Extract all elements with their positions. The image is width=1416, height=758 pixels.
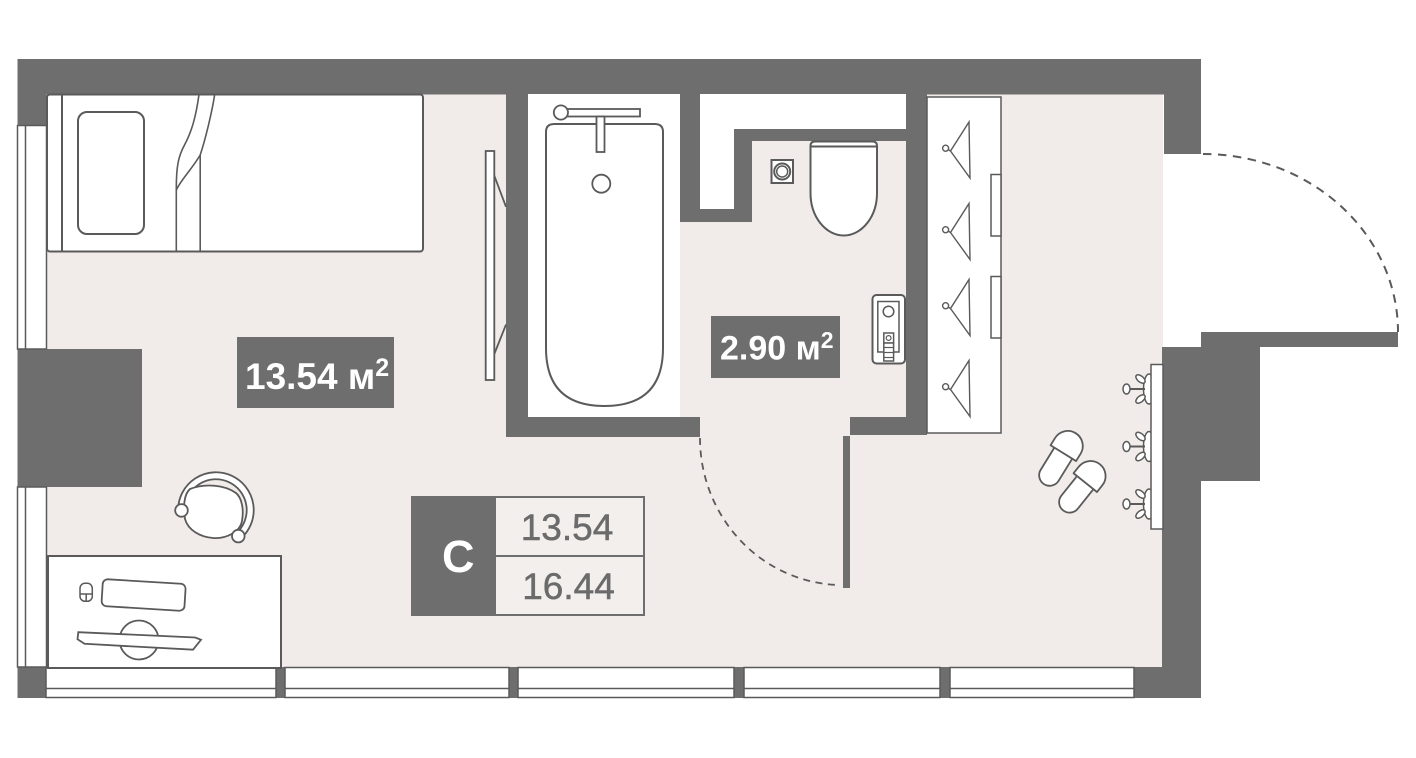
svg-text:13.54 м2: 13.54 м2	[245, 354, 389, 397]
svg-text:C: C	[442, 531, 475, 582]
svg-text:2.90 м2: 2.90 м2	[720, 327, 834, 368]
svg-text:16.44: 16.44	[522, 566, 615, 607]
svg-text:13.54: 13.54	[521, 507, 614, 548]
